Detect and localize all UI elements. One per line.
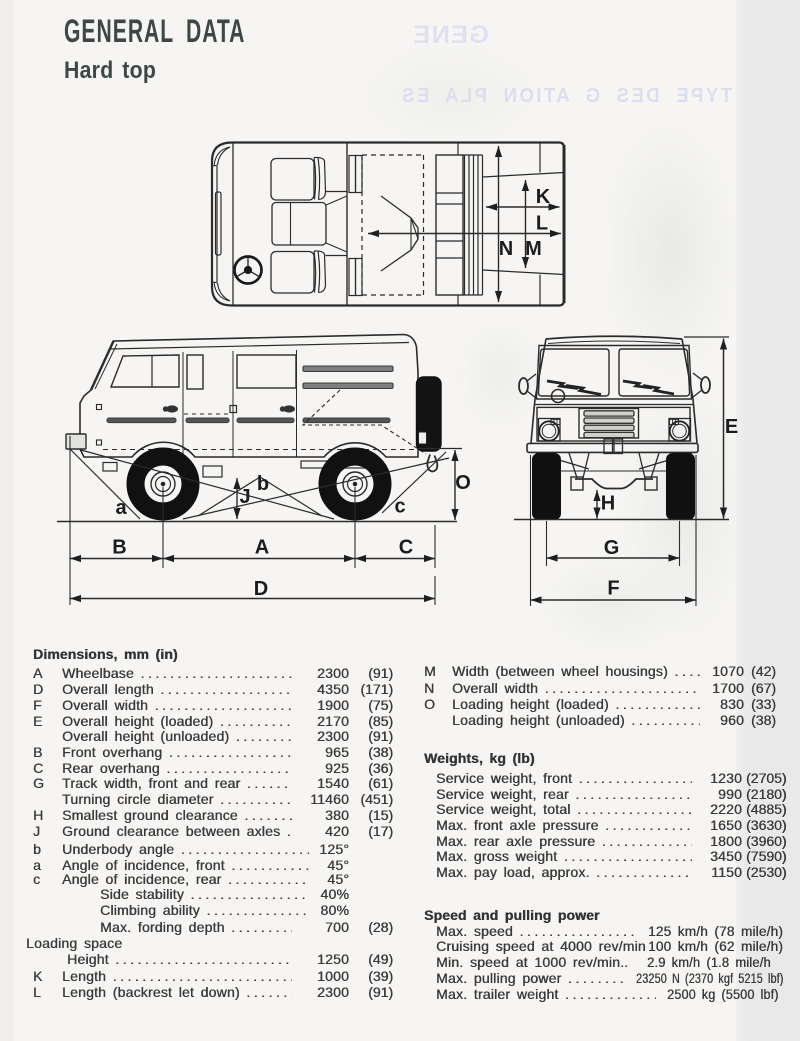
svg-text:F: F [607, 578, 619, 600]
svg-text:K: K [536, 186, 551, 208]
svg-text:C: C [399, 537, 413, 559]
svg-text:O: O [455, 472, 471, 494]
svg-text:E: E [725, 416, 738, 438]
svg-text:D: D [254, 578, 268, 600]
svg-text:J: J [239, 486, 250, 508]
svg-text:B: B [112, 537, 126, 559]
svg-text:M: M [525, 238, 542, 260]
svg-text:N: N [499, 238, 513, 260]
svg-text:H: H [601, 493, 615, 515]
svg-text:G: G [604, 537, 620, 559]
svg-text:L: L [536, 213, 548, 235]
svg-text:c: c [394, 496, 405, 518]
svg-text:a: a [115, 497, 127, 519]
svg-text:b: b [257, 473, 269, 495]
svg-text:A: A [255, 537, 269, 559]
